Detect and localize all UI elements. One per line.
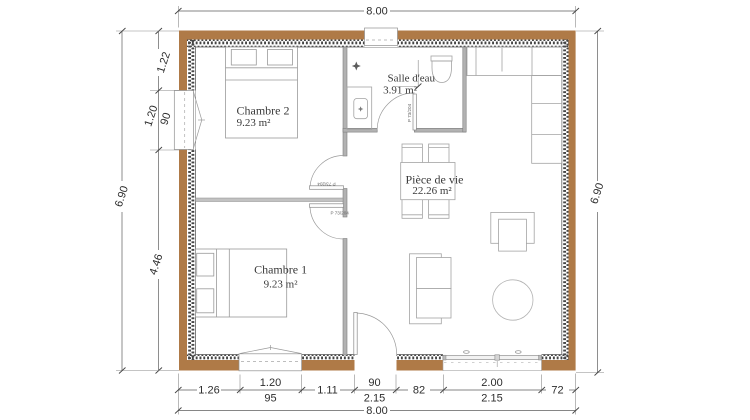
- svg-text:6.90: 6.90: [588, 181, 606, 205]
- svg-text:1.20: 1.20: [142, 104, 160, 128]
- svg-text:P 73/204: P 73/204: [407, 103, 412, 122]
- svg-text:2.15: 2.15: [481, 393, 502, 405]
- svg-text:95: 95: [264, 393, 276, 405]
- svg-text:22.26 m²: 22.26 m²: [412, 185, 452, 197]
- svg-text:72: 72: [551, 385, 563, 397]
- svg-text:1.22: 1.22: [155, 50, 173, 74]
- svg-text:1.11: 1.11: [317, 385, 338, 397]
- svg-text:Chambre 2: Chambre 2: [237, 104, 290, 118]
- svg-text:Salle d'eau: Salle d'eau: [388, 73, 436, 85]
- svg-text:2.15: 2.15: [364, 393, 385, 405]
- svg-text:6.90: 6.90: [113, 184, 131, 208]
- svg-text:P 73/204: P 73/204: [317, 181, 336, 186]
- svg-text:P 73/204: P 73/204: [331, 210, 350, 215]
- svg-text:Chambre 1: Chambre 1: [254, 263, 307, 277]
- svg-text:2.00: 2.00: [481, 377, 502, 389]
- svg-text:9.23 m²: 9.23 m²: [264, 279, 299, 291]
- svg-text:1.20: 1.20: [260, 377, 281, 389]
- svg-text:82: 82: [413, 385, 425, 397]
- svg-text:8.00: 8.00: [366, 405, 387, 417]
- svg-text:1.26: 1.26: [198, 385, 219, 397]
- svg-text:90: 90: [368, 377, 380, 389]
- svg-text:90: 90: [158, 111, 173, 126]
- svg-text:8.00: 8.00: [366, 6, 387, 18]
- svg-text:4.46: 4.46: [147, 252, 165, 276]
- svg-text:9.23 m²: 9.23 m²: [237, 117, 272, 129]
